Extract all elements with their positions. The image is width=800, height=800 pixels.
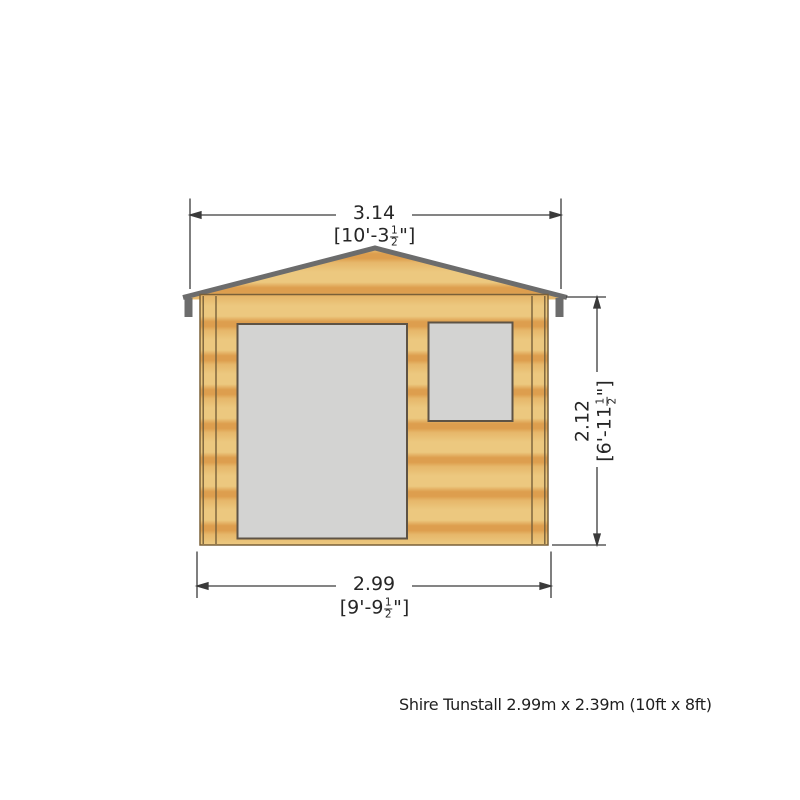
dimension-eaves-height-imperial: [6'-1112"]: [594, 380, 617, 462]
fraction: 12: [595, 396, 618, 405]
dimension-base-width-imperial: [9'-912"]: [340, 596, 410, 619]
door: [238, 324, 408, 539]
dimension-base-width-metric: 2.99: [353, 575, 395, 595]
arrowhead: [540, 583, 551, 589]
fraction-numerator: 1: [595, 396, 607, 405]
window: [429, 323, 513, 422]
dimension-value: 3.14: [353, 204, 395, 224]
dimension-value: 2.99: [353, 575, 395, 595]
arrowhead: [594, 534, 600, 545]
roof-end-cap-left: [185, 298, 193, 317]
arrowhead: [197, 583, 208, 589]
dimension-value: [9'-9: [340, 598, 384, 618]
fraction: 12: [390, 225, 399, 248]
dimension-overall-width-metric: 3.14: [353, 204, 395, 224]
fraction-denominator: 2: [607, 397, 618, 404]
dimension-value: "]: [595, 380, 617, 396]
dimension-eaves-height-metric: 2.12: [572, 380, 594, 462]
dimension-value: [10'-3: [334, 226, 390, 246]
dimension-value: 2.12: [572, 399, 594, 441]
dimension-overall-width-imperial: [10'-312"]: [334, 224, 416, 247]
fraction-denominator: 2: [385, 610, 392, 621]
product-caption: Shire Tunstall 2.99m x 2.39m (10ft x 8ft…: [399, 695, 712, 714]
dimension-eaves-height: 2.12 [6'-1112"]: [572, 380, 617, 462]
arrowhead: [190, 212, 201, 218]
arrowhead: [550, 212, 561, 218]
dimension-diagram-page: 3.14 [10'-312"] 2.12 [6'-1112"] 2.99 [9'…: [0, 0, 800, 800]
fraction: 12: [384, 597, 393, 620]
arrowhead: [594, 297, 600, 308]
roof-gable: [184, 250, 566, 300]
cabin-elevation-drawing: [0, 0, 800, 800]
fraction-denominator: 2: [391, 238, 398, 249]
dimension-value: "]: [399, 226, 415, 246]
roof-end-cap-right: [556, 298, 564, 317]
dimension-value: [6'-11: [595, 406, 617, 462]
dimension-value: "]: [393, 598, 409, 618]
